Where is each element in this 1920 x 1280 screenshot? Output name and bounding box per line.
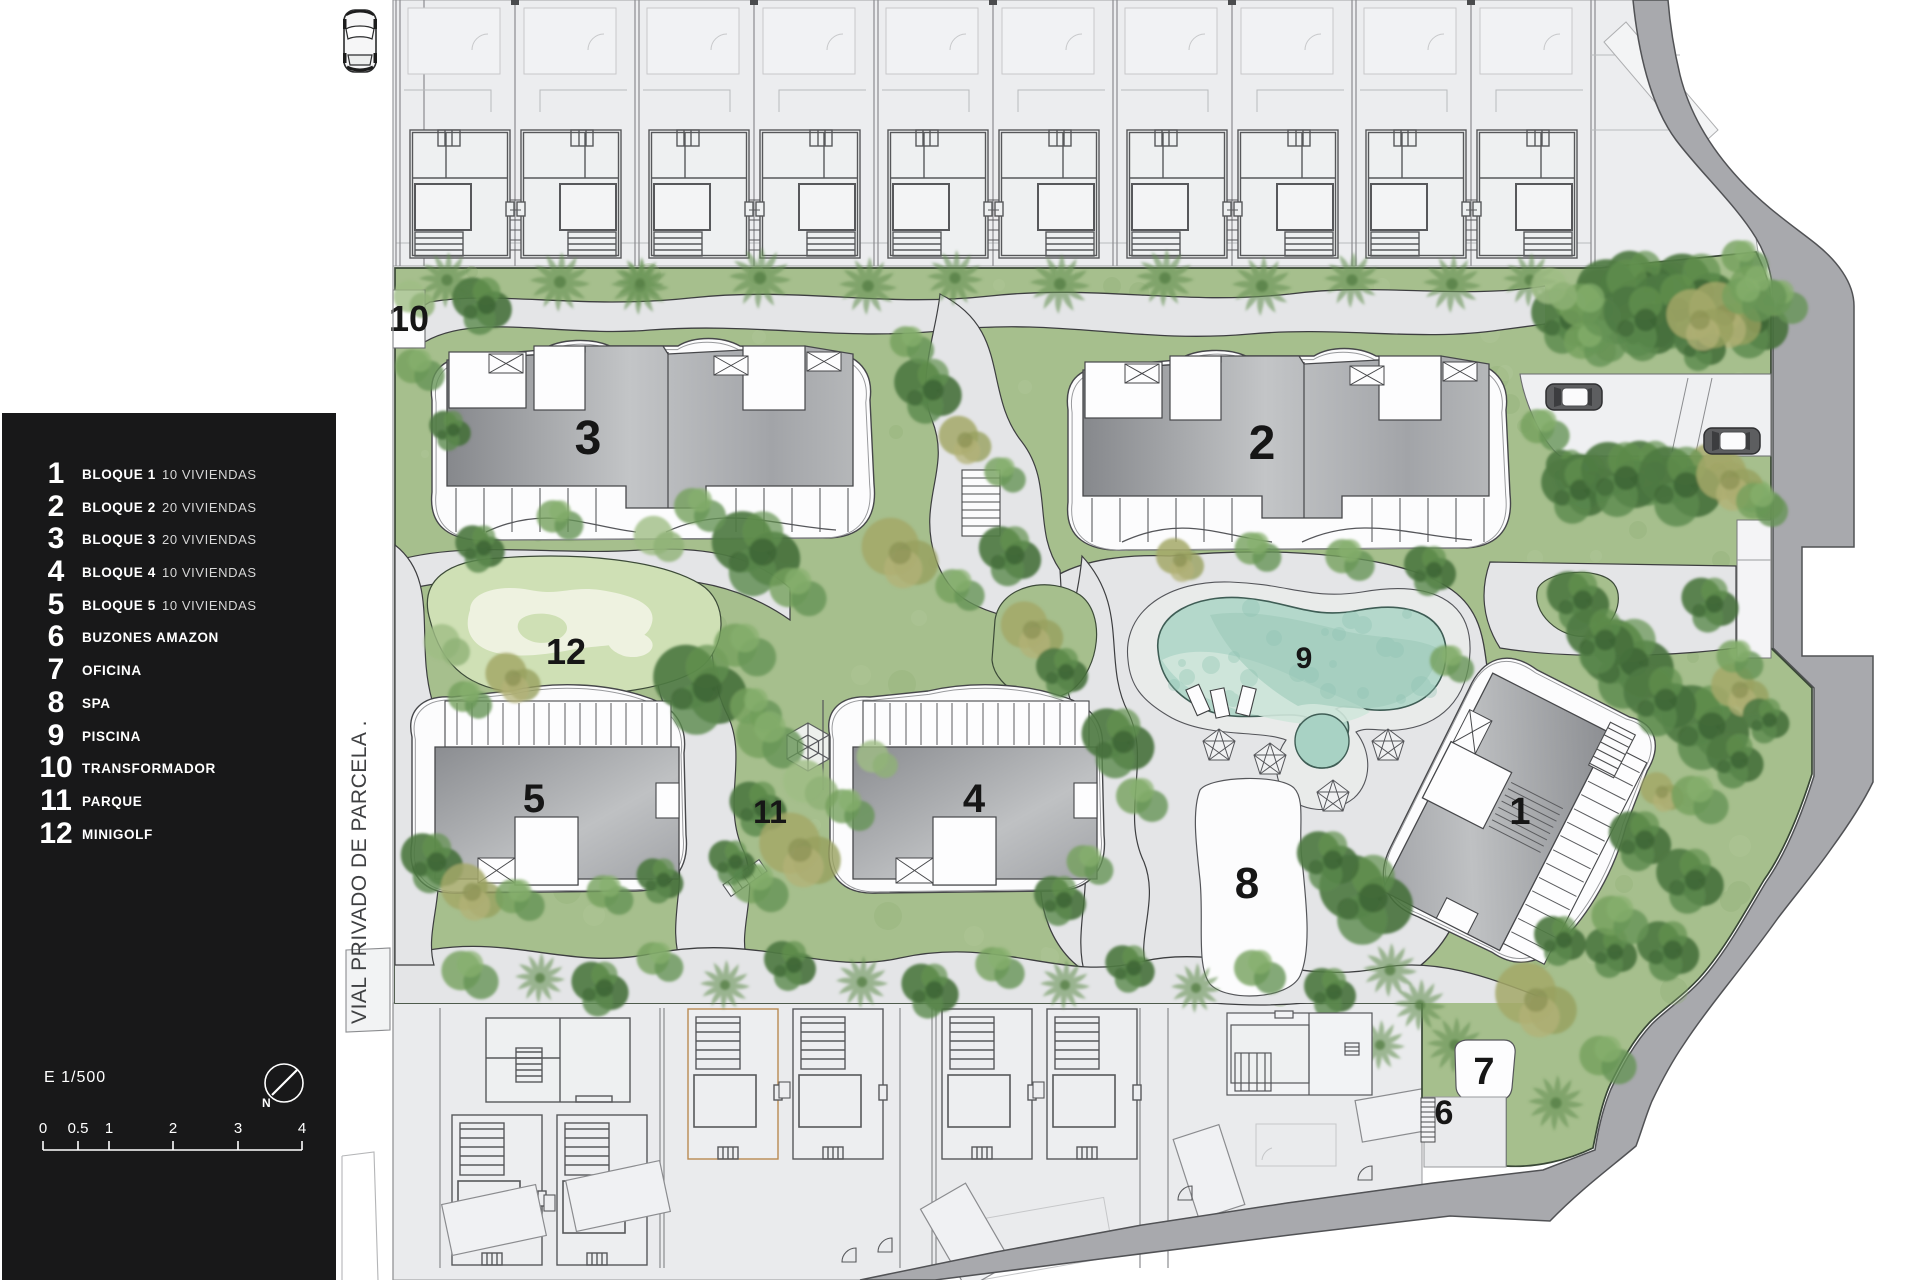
svg-text:OFICINA: OFICINA: [82, 663, 142, 678]
svg-text:TRANSFORMADOR: TRANSFORMADOR: [82, 761, 216, 776]
svg-text:6: 6: [48, 620, 65, 653]
svg-text:12: 12: [39, 817, 72, 850]
svg-text:2: 2: [48, 490, 65, 523]
svg-text:MINIGOLF: MINIGOLF: [82, 827, 153, 842]
svg-text:0: 0: [39, 1120, 47, 1137]
svg-text:2: 2: [1249, 417, 1276, 470]
svg-text:20 VIVIENDAS: 20 VIVIENDAS: [162, 500, 257, 515]
svg-text:N: N: [262, 1096, 271, 1110]
svg-text:2: 2: [169, 1120, 177, 1137]
svg-text:BLOQUE 4: BLOQUE 4: [82, 565, 156, 580]
svg-text:1: 1: [1509, 791, 1530, 833]
svg-text:4: 4: [298, 1120, 306, 1137]
svg-text:10 VIVIENDAS: 10 VIVIENDAS: [162, 565, 257, 580]
svg-text:10: 10: [389, 298, 429, 339]
svg-text:20 VIVIENDAS: 20 VIVIENDAS: [162, 532, 257, 547]
svg-text:10 VIVIENDAS: 10 VIVIENDAS: [162, 467, 257, 482]
svg-text:10: 10: [39, 751, 72, 784]
svg-text:10 VIVIENDAS: 10 VIVIENDAS: [162, 598, 257, 613]
svg-text:0.5: 0.5: [68, 1120, 89, 1137]
svg-text:4: 4: [48, 555, 65, 588]
svg-text:11: 11: [753, 794, 787, 830]
svg-text:3: 3: [575, 412, 602, 465]
svg-text:BLOQUE 1: BLOQUE 1: [82, 467, 156, 482]
svg-text:4: 4: [963, 777, 986, 821]
svg-text:BLOQUE 2: BLOQUE 2: [82, 500, 156, 515]
svg-text:3: 3: [234, 1120, 242, 1137]
svg-text:BUZONES AMAZON: BUZONES AMAZON: [82, 630, 219, 645]
svg-text:BLOQUE 3: BLOQUE 3: [82, 532, 156, 547]
svg-text:9: 9: [1296, 642, 1313, 675]
svg-text:8: 8: [48, 686, 65, 719]
svg-text:1: 1: [48, 457, 65, 490]
svg-text:11: 11: [40, 784, 72, 817]
svg-text:12: 12: [546, 631, 586, 672]
svg-text:PISCINA: PISCINA: [82, 729, 141, 744]
svg-text:VIAL PRIVADO DE PARCELA .: VIAL PRIVADO DE PARCELA .: [348, 720, 371, 1024]
svg-text:PARQUE: PARQUE: [82, 794, 142, 809]
svg-text:8: 8: [1235, 859, 1259, 908]
svg-text:6: 6: [1435, 1094, 1454, 1132]
svg-text:E 1/500: E 1/500: [44, 1069, 106, 1086]
svg-text:7: 7: [48, 653, 65, 686]
svg-text:7: 7: [1473, 1051, 1494, 1093]
svg-text:5: 5: [48, 588, 65, 621]
svg-text:1: 1: [105, 1120, 113, 1137]
svg-text:3: 3: [48, 522, 65, 555]
svg-text:9: 9: [48, 719, 65, 752]
svg-text:SPA: SPA: [82, 696, 111, 711]
svg-text:BLOQUE 5: BLOQUE 5: [82, 598, 156, 613]
svg-text:5: 5: [523, 777, 545, 821]
